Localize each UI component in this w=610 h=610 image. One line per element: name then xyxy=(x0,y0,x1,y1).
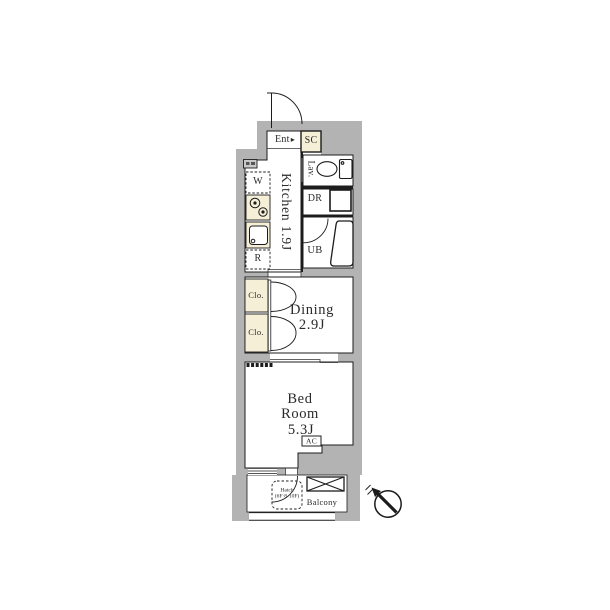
washer-label: W xyxy=(253,177,263,187)
meter-box-icon xyxy=(244,160,258,169)
unit-bath-label: UB xyxy=(307,246,322,257)
balcony-railing xyxy=(249,513,335,521)
lavatory-label: Lav. xyxy=(307,161,316,178)
sink-icon xyxy=(250,226,268,245)
dressing-room-label: DR xyxy=(308,194,323,204)
dining-label: Dining xyxy=(290,303,334,318)
bedroom-label-line2: Room xyxy=(281,407,319,422)
shoe-closet-label: SC xyxy=(305,136,318,146)
ac-label: AC xyxy=(306,437,317,445)
kitchen-label: Kitchen 1.9J xyxy=(279,173,293,251)
bedroom-area-label: 5.3J xyxy=(288,423,314,438)
floorplan-image: Ent ▸ SC Lav. DR UB Kitchen 1.9J W R Clo… xyxy=(0,0,610,610)
refrigerator-label: R xyxy=(255,254,262,264)
closet-lower-label: Clo. xyxy=(248,328,264,337)
compass-icon xyxy=(366,485,402,517)
closet-upper-label: Clo. xyxy=(248,291,264,300)
washbasin-icon xyxy=(330,190,351,211)
dining-area-label: 2.9J xyxy=(299,318,325,333)
hatch-label-line2: (6F·8-10F) xyxy=(275,494,299,500)
bedroom-window xyxy=(248,468,277,475)
balcony-label: Balcony xyxy=(307,498,337,507)
bedroom-label-line1: Bed xyxy=(287,392,312,407)
entrance-label-text: Ent xyxy=(275,135,290,145)
outdoor-unit-icon xyxy=(307,477,344,491)
entry-direction-arrow-icon: ▸ xyxy=(291,136,295,144)
entrance-label: Ent ▸ xyxy=(275,135,295,145)
